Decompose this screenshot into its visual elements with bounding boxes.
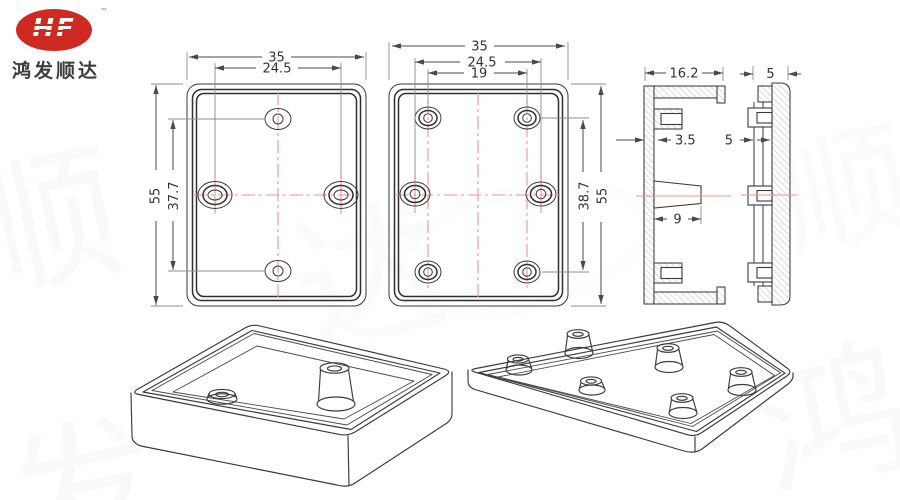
dim-v2-hole-span: 19 [471,67,488,82]
dim-v3-wall: 3.5 [675,134,696,149]
view-cover-section: 5 5 [725,66,801,305]
logo-hf-ellipse: HF ™ [16,9,92,51]
dim-v4-thickness: 5 [766,67,774,82]
iso-view-cover [468,322,793,452]
cover-boss [748,263,772,282]
logo-stripe [29,36,79,38]
section-boss [654,181,701,208]
dim-v1-height: 55 [149,188,164,205]
dim-v4-boss-height: 5 [725,134,733,149]
dim-v2-width: 35 [471,40,488,55]
iso-cover-boss [669,394,697,419]
watermark-char: 顺 [0,124,136,325]
dim-v1-hole-span: 24.5 [263,62,292,77]
cover-boss [748,108,772,127]
iso-cover-boss [565,330,593,359]
dim-v3-boss-width: 9 [673,213,681,228]
company-name: 鸿发顺达 [12,56,162,83]
section-rib-lower [654,263,682,283]
dim-v3-depth: 16.2 [670,67,699,82]
dim-v2-height: 55 [596,188,611,205]
watermark-char: 鸿 [743,319,900,500]
logo-stripe [29,30,79,32]
drawing-sheet: 顺 发 达 鸿 顺 [0,0,900,500]
iso-cover-boss [506,355,532,375]
view-cover-inner-face: 35 24.5 19 38.7 55 [389,40,611,307]
dim-v2-hole-span-v: 38.7 [578,182,593,211]
iso-cover-boss [655,344,683,373]
logo: HF ™ 鸿发顺达 [12,9,162,83]
logo-stripe [29,24,79,26]
watermark-char: 达 [278,179,461,380]
dim-v1-hole-span-v: 37.7 [167,182,182,211]
view-box-section: 16.2 3.5 9 [616,67,731,305]
iso-cover-boss [579,377,605,395]
trademark-symbol: ™ [100,7,108,16]
iso-boss-short [207,389,237,404]
section-rib-upper [654,109,682,129]
